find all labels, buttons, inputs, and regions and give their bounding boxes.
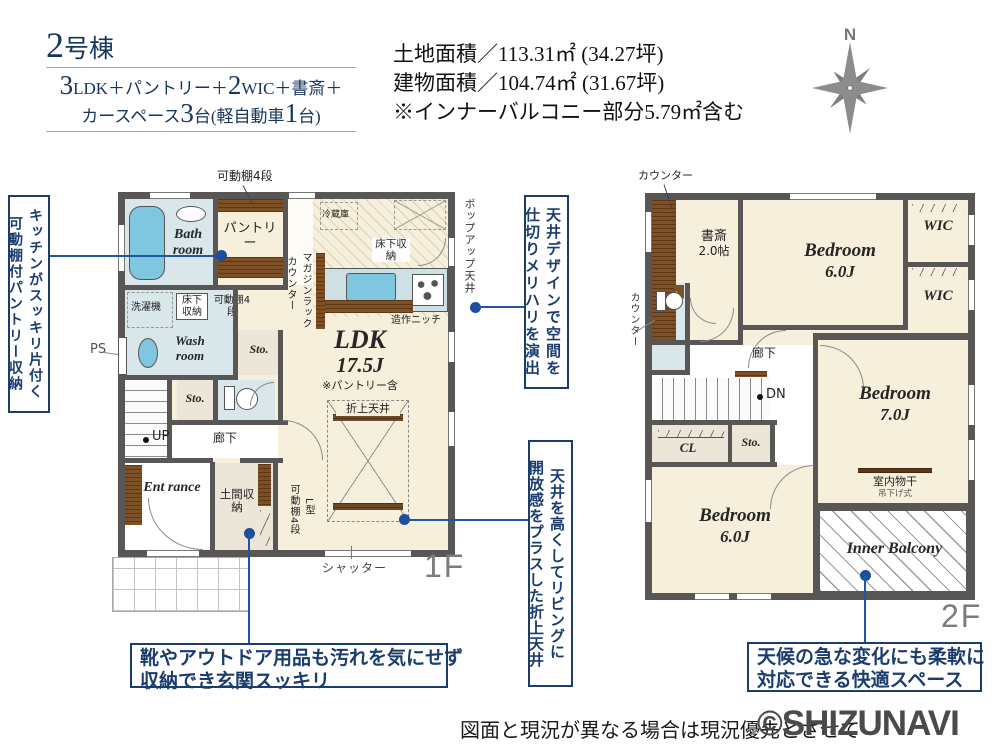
- dn-label: DN: [766, 388, 786, 403]
- wall: [233, 290, 238, 380]
- wall: [685, 283, 690, 375]
- fridge-label: 冷蔵庫: [322, 210, 349, 220]
- shelf-4dan-label-mid: 可動棚4段: [211, 295, 253, 318]
- wall: [652, 340, 743, 345]
- kitchen-upper-cabinet: [394, 200, 446, 230]
- popup-ceiling-label: ポップアップ天井: [461, 198, 477, 310]
- wall: [172, 420, 288, 425]
- compass-rose: N: [800, 22, 900, 137]
- closet-rod: [658, 437, 724, 438]
- entrance-door-opening: [147, 550, 199, 557]
- wall: [213, 199, 218, 290]
- pointer-line: [104, 352, 119, 355]
- divider: [46, 67, 356, 68]
- counter-label-2f-top: カウンター: [638, 170, 693, 183]
- ps-label: PS: [90, 343, 106, 358]
- study-counter: [652, 200, 676, 340]
- window: [968, 280, 975, 310]
- leader-line: [864, 576, 866, 642]
- wic-hanger-marks: [912, 268, 964, 276]
- pantry-label: パントリー: [220, 222, 280, 252]
- corridor-label-2f: 廊下: [752, 347, 776, 361]
- wic2-label: WIC: [908, 288, 968, 305]
- window: [150, 192, 190, 199]
- shutter-label: シャッター: [322, 562, 387, 576]
- doma-shelf: [258, 464, 271, 506]
- wall: [818, 503, 975, 509]
- window: [118, 225, 125, 271]
- indoor-drying-label: 室内物干: [862, 476, 928, 489]
- tick-mark: [351, 546, 352, 559]
- bedroom3-label: Bedroom: [675, 505, 795, 526]
- building-area: 建物面積／104.74㎡ (31.67坪): [393, 69, 744, 98]
- l-type-label: L型: [301, 498, 316, 526]
- wall: [210, 462, 215, 557]
- shelf-4dan-label-doma: 可動棚4段: [286, 484, 301, 546]
- drying-bar: [858, 468, 932, 473]
- counter-label-1f: カウンター: [283, 256, 298, 318]
- drying-type-label: 吊下げ式: [870, 490, 920, 500]
- floor2-label: 2F: [941, 598, 982, 635]
- window: [968, 215, 975, 245]
- wall: [278, 330, 283, 425]
- window: [645, 480, 652, 522]
- annotation-pantry: キッチンがスッキリ片付く 可動棚付パントリー収納: [8, 195, 50, 413]
- wall: [125, 458, 213, 463]
- closet-hanger-marks: [658, 430, 724, 437]
- land-area: 土地面積／113.31㎡ (34.27坪): [393, 40, 744, 69]
- bedroom1-label: Bedroom: [780, 240, 900, 261]
- building-number: 2号棟: [46, 24, 114, 66]
- dn-marker-dot: [757, 394, 763, 400]
- inner-balcony-label: Inner Balcony: [822, 540, 967, 558]
- bedroom2-size: 7.0J: [835, 405, 955, 424]
- magazine-rack-vertical: [316, 253, 325, 329]
- window: [289, 192, 315, 199]
- entrance-shoe-shelf: [125, 465, 142, 525]
- doma-storage-label: 土間収納: [219, 488, 255, 514]
- ps-shaft: [118, 337, 127, 375]
- entrance-label: Ent rance: [142, 480, 202, 496]
- underfloor-storage-label: 床下収納: [179, 295, 205, 318]
- stairs-2f: [652, 378, 770, 420]
- layout-spec-line1: 3LDK＋パントリー＋2WIC＋書斎＋: [46, 70, 356, 101]
- wall: [738, 200, 743, 345]
- wall: [652, 370, 690, 375]
- storage-2f-label: Sto.: [733, 436, 769, 449]
- corridor-label-1f: 廊下: [213, 432, 237, 446]
- bath-sink: [176, 206, 206, 222]
- annotation-ceiling-design: 天井デザインで空間を 仕切りメリハリを演出: [524, 195, 569, 389]
- storage1-label: Sto.: [241, 343, 277, 356]
- wash-sink: [138, 338, 158, 368]
- balcony-note: ※インナーバルコニー部分5.79㎡含む: [393, 98, 744, 127]
- leader-line: [478, 306, 525, 308]
- wall: [652, 420, 777, 425]
- watermark: ©SHIZUNAVI: [757, 704, 959, 744]
- ldk-label: LDK: [300, 325, 420, 354]
- magazine-rack-horizontal: [325, 300, 413, 313]
- wash-room-label: Wash room: [160, 334, 220, 363]
- spec-num: 3: [60, 70, 74, 100]
- leader-line: [408, 519, 528, 521]
- storage2-label: Sto.: [178, 392, 212, 405]
- wall: [125, 375, 238, 380]
- wall: [728, 425, 732, 462]
- annotation-folded-ceiling: 天井を高くしてリビングに 開放感をプラスした折上天井: [528, 440, 573, 687]
- kitchen-sink: [346, 273, 396, 301]
- closet-label: CL: [668, 441, 708, 456]
- study-label: 書斎2.0帖: [690, 230, 738, 260]
- floor1-label: 1F: [424, 548, 465, 585]
- magazine-rack-label: マガジンラック: [298, 252, 313, 336]
- bedroom3-size: 6.0J: [675, 527, 795, 546]
- compass-center: [848, 86, 853, 91]
- stove: [412, 274, 444, 306]
- wic1-label: WIC: [908, 218, 968, 235]
- wall: [213, 378, 218, 425]
- ldk-note-label: ※パントリー含: [300, 380, 420, 393]
- window: [968, 440, 975, 480]
- window: [790, 193, 876, 200]
- bedroom2-label: Bedroom: [835, 383, 955, 404]
- bedroom1-size: 6.0J: [780, 262, 900, 281]
- compass-north-label: N: [844, 25, 856, 44]
- bathtub: [129, 206, 165, 280]
- layout-spec-line2: カースペース3台(軽自動車1台): [46, 98, 356, 129]
- ldk-size-label: 17.5J: [300, 354, 420, 378]
- window: [645, 212, 652, 252]
- wall: [813, 333, 968, 340]
- window: [448, 412, 455, 446]
- up-label: UP: [152, 430, 169, 445]
- toilet-tank-1f: [224, 386, 235, 410]
- underfloor-storage-label-kitchen: 床下収納: [372, 238, 410, 262]
- ceiling-beam: [333, 503, 403, 510]
- shutter-window: [325, 550, 411, 557]
- annotation-entrance: 靴やアウトドア用品も汚れを気にせず 収納でき玄関スッキリ: [130, 643, 448, 688]
- wall: [125, 285, 288, 290]
- leader-line: [50, 255, 222, 257]
- window: [448, 332, 455, 362]
- folded-ceiling-label: 折上天井: [336, 403, 400, 416]
- area-info: 土地面積／113.31㎡ (34.27坪) 建物面積／104.74㎡ (31.6…: [393, 40, 744, 127]
- wic-hanger-marks: [912, 204, 964, 212]
- entrance-porch: [112, 557, 250, 612]
- leader-dot: [216, 250, 227, 261]
- doma-shelf-marks: [260, 510, 270, 546]
- window: [695, 593, 729, 600]
- leader-line: [248, 534, 250, 643]
- wall: [770, 425, 775, 462]
- annotation-balcony: 天候の急な変化にも柔軟に 対応できる快適スペース: [747, 642, 982, 692]
- window: [737, 593, 771, 600]
- shelf-4dan-label-top: 可動棚4段: [217, 170, 273, 184]
- floorplan-page: 2号棟 3LDK＋パントリー＋2WIC＋書斎＋ カースペース3台(軽自動車1台)…: [0, 0, 1000, 750]
- wall: [908, 262, 968, 267]
- wall: [813, 508, 819, 593]
- counter-label-2f-left: カウンター: [626, 292, 641, 356]
- window: [968, 385, 975, 425]
- wall: [743, 325, 908, 330]
- wall: [652, 462, 777, 467]
- bath-room-label: Bath room: [163, 227, 213, 258]
- wall: [273, 462, 278, 557]
- window: [448, 238, 455, 266]
- up-marker-dot: [143, 437, 149, 443]
- divider: [46, 131, 356, 132]
- stairs-1f: [125, 380, 167, 462]
- pantry-shelf-bottom: [218, 257, 283, 278]
- washer-label: 洗濯機: [131, 302, 161, 314]
- stair-handrail: [735, 371, 767, 377]
